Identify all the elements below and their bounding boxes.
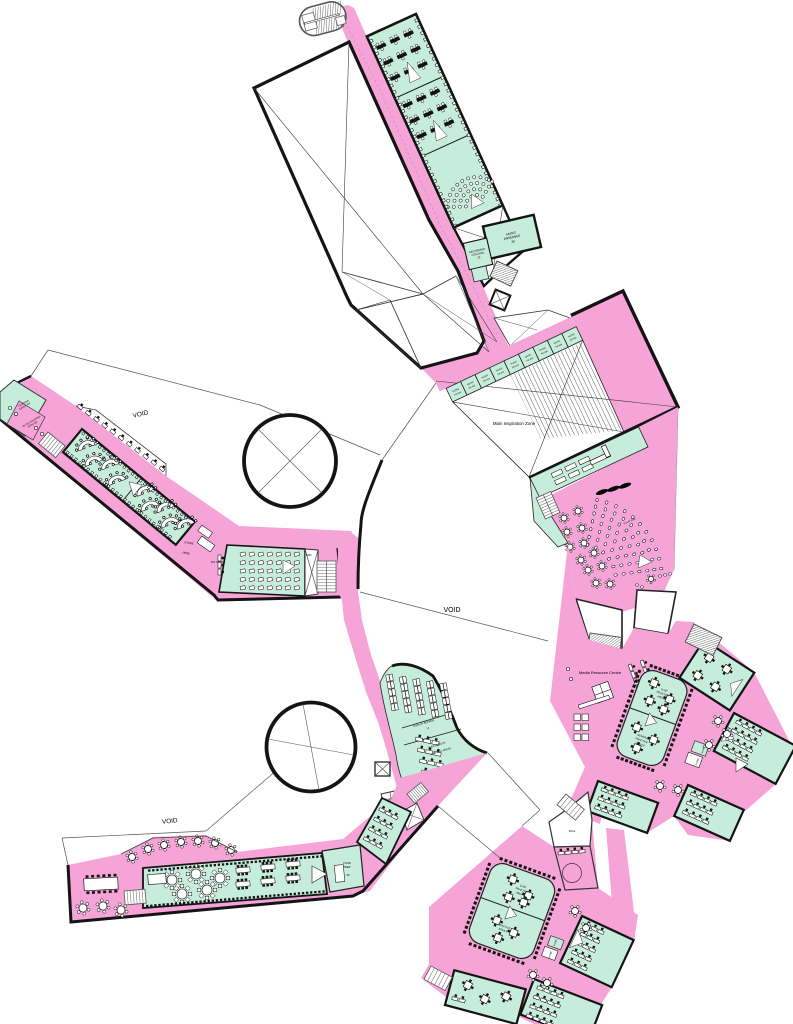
svg-text:SCI OFFICE: SCI OFFICE [211,560,226,564]
svg-text:DWC: DWC [306,554,312,557]
svg-text:Main Inspiration Zone: Main Inspiration Zone [493,421,536,426]
svg-text:FOOD: FOOD [343,861,351,865]
svg-text:VOID: VOID [443,607,460,614]
svg-text:WCs: WCs [569,829,576,833]
svg-text:PREP: PREP [343,865,350,869]
svg-text:Media Resource Centre: Media Resource Centre [579,670,622,675]
